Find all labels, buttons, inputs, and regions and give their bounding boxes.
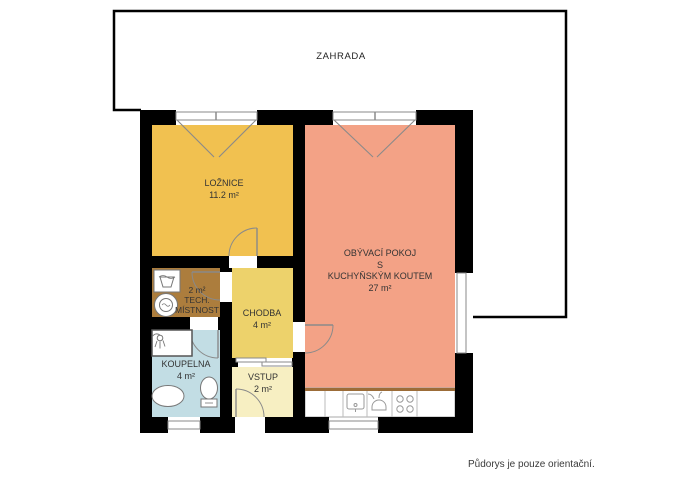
wall-segment xyxy=(140,417,168,433)
room-label-tech-mistnost: 2 m² TECH. MÍSTNOST xyxy=(175,285,219,315)
room-label-loznice: LOŽNICE 11.2 m² xyxy=(204,178,243,201)
room-area: 4 m² xyxy=(161,371,210,383)
bathroom-sink-icon xyxy=(152,386,184,407)
wall-segment xyxy=(218,317,232,330)
wall-segment xyxy=(152,317,190,330)
wall-segment xyxy=(293,125,305,322)
wall-segment xyxy=(378,417,473,433)
room-area: 2 m² xyxy=(248,384,278,396)
living-room-side-window xyxy=(457,273,466,353)
room-name: KUCHYŇSKÝM KOUTEM xyxy=(328,271,433,283)
floor-plan-drawing xyxy=(0,0,686,485)
floor-plan: ZAHRADA LOŽNICE 11.2 m² OBÝVACÍ POKOJ S … xyxy=(0,0,686,485)
wall-segment xyxy=(257,110,333,125)
kitchen-counter xyxy=(305,388,455,417)
wall-segment xyxy=(265,417,329,433)
room-area: 27 m² xyxy=(328,283,433,295)
room-name: LOŽNICE xyxy=(204,178,243,190)
disclaimer-note: Půdorys je pouze orientační. xyxy=(468,459,595,470)
wall-segment xyxy=(220,268,232,272)
room-label-koupelna: KOUPELNA 4 m² xyxy=(161,359,210,382)
counter-edge xyxy=(305,388,455,391)
room-label-vstup: VSTUP 2 m² xyxy=(248,372,278,395)
kitchen-window xyxy=(329,421,378,429)
wall-segment xyxy=(292,358,305,367)
bathroom-window xyxy=(168,421,200,429)
room-name: KOUPELNA xyxy=(161,359,210,371)
wall-segment xyxy=(152,256,229,268)
room-name: OBÝVACÍ POKOJ xyxy=(328,248,433,260)
room-name: VSTUP xyxy=(248,372,278,384)
wall-segment xyxy=(455,110,473,273)
room-name: MÍSTNOST xyxy=(175,305,219,315)
room-name: ZAHRADA xyxy=(316,51,366,63)
shower-icon xyxy=(152,330,192,356)
room-name: CHODBA xyxy=(243,308,282,320)
wall-segment xyxy=(140,110,152,433)
garden-label: ZAHRADA xyxy=(316,51,366,63)
room-label-obyvaci-pokoj: OBÝVACÍ POKOJ S KUCHYŇSKÝM KOUTEM 27 m² xyxy=(328,248,433,294)
room-name: S xyxy=(328,260,433,272)
room-name: TECH. xyxy=(175,295,219,305)
wall-segment xyxy=(200,417,235,433)
room-area: 11.2 m² xyxy=(204,190,243,202)
room-label-chodba: CHODBA 4 m² xyxy=(243,308,282,331)
room-area: 2 m² xyxy=(175,285,219,295)
room-area: 4 m² xyxy=(243,320,282,332)
